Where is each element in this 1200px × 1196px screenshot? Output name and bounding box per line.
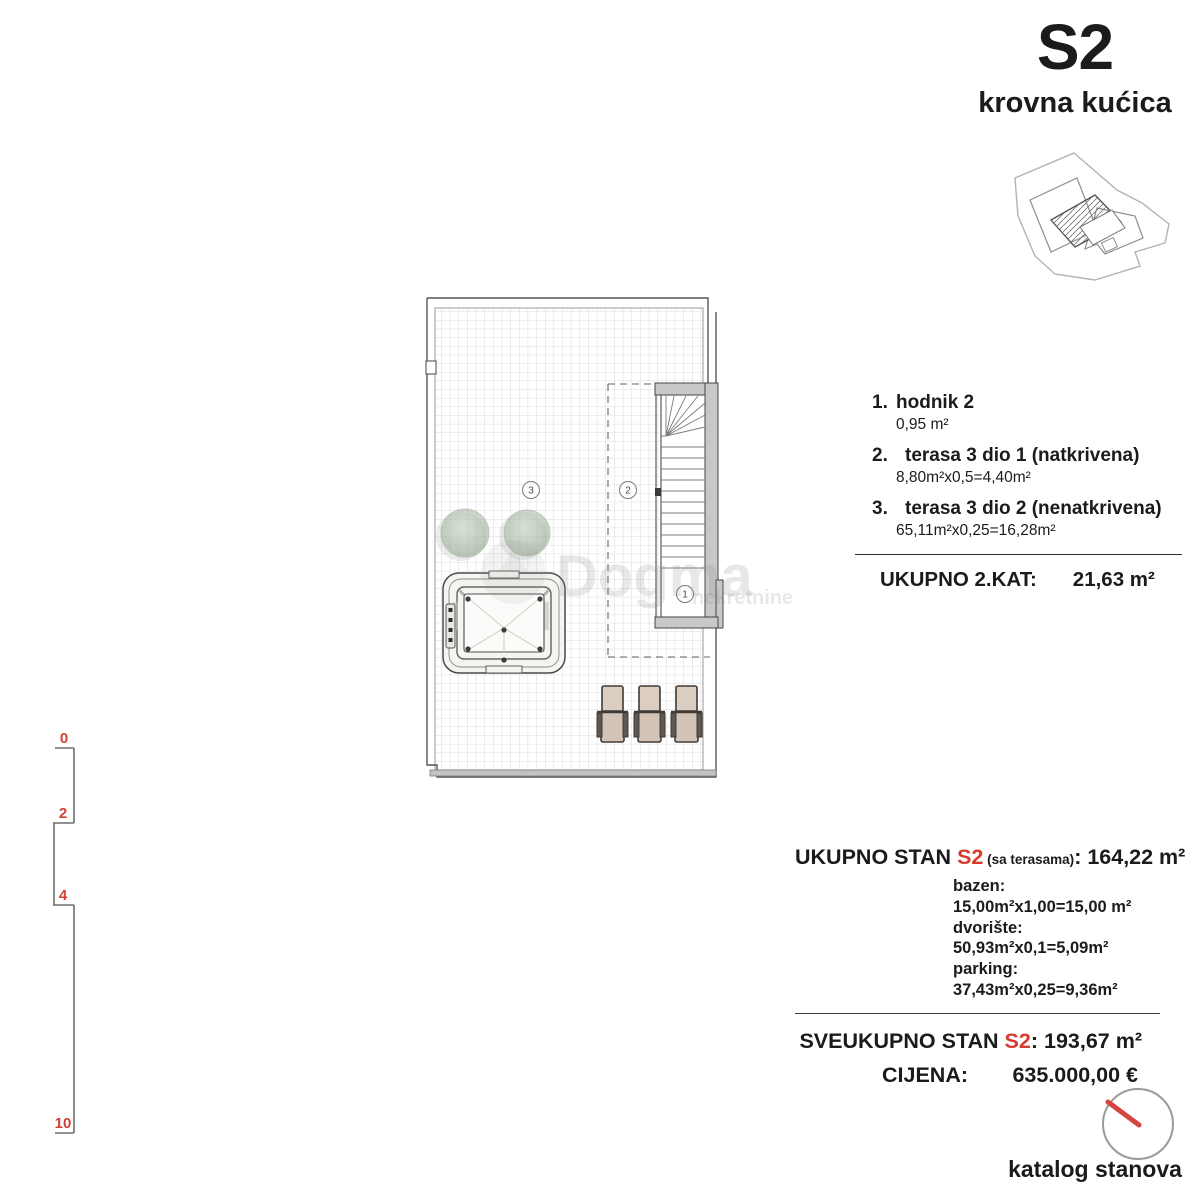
apartment-unit-code: S2 (957, 845, 983, 869)
scale-label-4: 4 (59, 887, 68, 904)
legend-item-name: terasa 3 dio 2 (nenatkrivena) (896, 498, 1162, 520)
legend-item-name: terasa 3 dio 1 (natkrivena) (896, 445, 1139, 467)
legend-item: 1. hodnik 2 0,95 m² (855, 392, 1190, 434)
scale-bar: 0 2 4 10 (40, 725, 90, 1145)
extra-area-yard: dvorište: 50,93m²x0,1=5,09m² (953, 918, 1160, 960)
wall-notch (426, 361, 436, 374)
colon: : (1031, 1029, 1044, 1053)
price-label: CIJENA: (882, 1063, 968, 1088)
summary-block: UKUPNO STAN S2 (sa terasama): 164,22 m² … (795, 845, 1160, 1088)
legend-item-area: 8,80m²x0,5=4,40m² (896, 469, 1139, 487)
north-compass (1097, 1083, 1179, 1165)
legend-item-area: 0,95 m² (896, 416, 974, 434)
grand-total-unit-code: S2 (1005, 1029, 1031, 1053)
tub-bottom-step (486, 666, 522, 673)
lounger (671, 686, 702, 742)
sun-loungers (597, 686, 702, 742)
scale-label-10: 10 (55, 1115, 72, 1132)
watermark-subtext: nekretnine (692, 587, 793, 609)
floor-total-label: UKUPNO 2.KAT: (880, 568, 1037, 591)
grand-total-label: SVEUKUPNO STAN (799, 1029, 1004, 1053)
stair-wall-bottom (655, 617, 718, 628)
site-plan-map (985, 148, 1190, 298)
colon: : (1074, 845, 1087, 869)
extra-area-pool: bazen: 15,00m²x1,00=15,00 m² (953, 876, 1160, 918)
legend-item-area: 65,11m²x0,25=16,28m² (896, 522, 1162, 540)
catalog-sheet: S2 krovna kućica (0, 0, 1200, 1196)
legend-divider (855, 554, 1182, 555)
tree-icon (441, 509, 489, 557)
scale-label-0: 0 (60, 730, 68, 747)
lounger (597, 686, 628, 742)
grand-total-line: SVEUKUPNO STAN S2: 193,67 m² (795, 1029, 1160, 1054)
lounger (634, 686, 665, 742)
grand-total-value: 193,67 m² (1044, 1029, 1142, 1053)
stair-wall-left-pier (655, 488, 661, 496)
catalog-caption: katalog stanova (990, 1156, 1200, 1183)
room-legend: 1. hodnik 2 0,95 m² 2. terasa 3 dio 1 (n… (855, 392, 1190, 592)
legend-item-name: hodnik 2 (896, 392, 974, 414)
floor-plan: 3 2 1 Dogma nekretnine (380, 280, 800, 790)
legend-item: 3. terasa 3 dio 2 (nenatkrivena) 65,11m²… (855, 498, 1190, 540)
floor-total-value: 21,63 m² (1073, 568, 1155, 591)
extra-area-parking: parking: 37,43m²x0,25=9,36m² (953, 959, 1160, 1001)
plan-bottom-band (430, 770, 716, 776)
scale-label-2: 2 (59, 805, 67, 822)
legend-item-number: 3. (855, 498, 896, 540)
header: S2 krovna kućica (950, 14, 1200, 120)
legend-item-number: 1. (855, 392, 896, 434)
apartment-total-line: UKUPNO STAN S2 (sa terasama): 164,22 m² (795, 845, 1160, 870)
legend-item: 2. terasa 3 dio 1 (natkrivena) 8,80m²x0,… (855, 445, 1190, 487)
apartment-total-note: (sa terasama) (983, 852, 1074, 867)
room-marker-3: 3 (528, 486, 534, 497)
extra-areas: bazen: 15,00m²x1,00=15,00 m² dvorište: 5… (953, 876, 1160, 1001)
floor-total: UKUPNO 2.KAT:21,63 m² (855, 568, 1190, 592)
legend-item-number: 2. (855, 445, 896, 487)
apartment-total-label: UKUPNO STAN (795, 845, 957, 869)
watermark: Dogma nekretnine (481, 540, 793, 609)
apartment-total-value: 164,22 m² (1087, 845, 1185, 869)
summary-divider (795, 1013, 1160, 1014)
room-marker-2: 2 (625, 486, 631, 497)
unit-subtitle: krovna kućica (950, 87, 1200, 120)
unit-title: S2 (950, 14, 1200, 81)
